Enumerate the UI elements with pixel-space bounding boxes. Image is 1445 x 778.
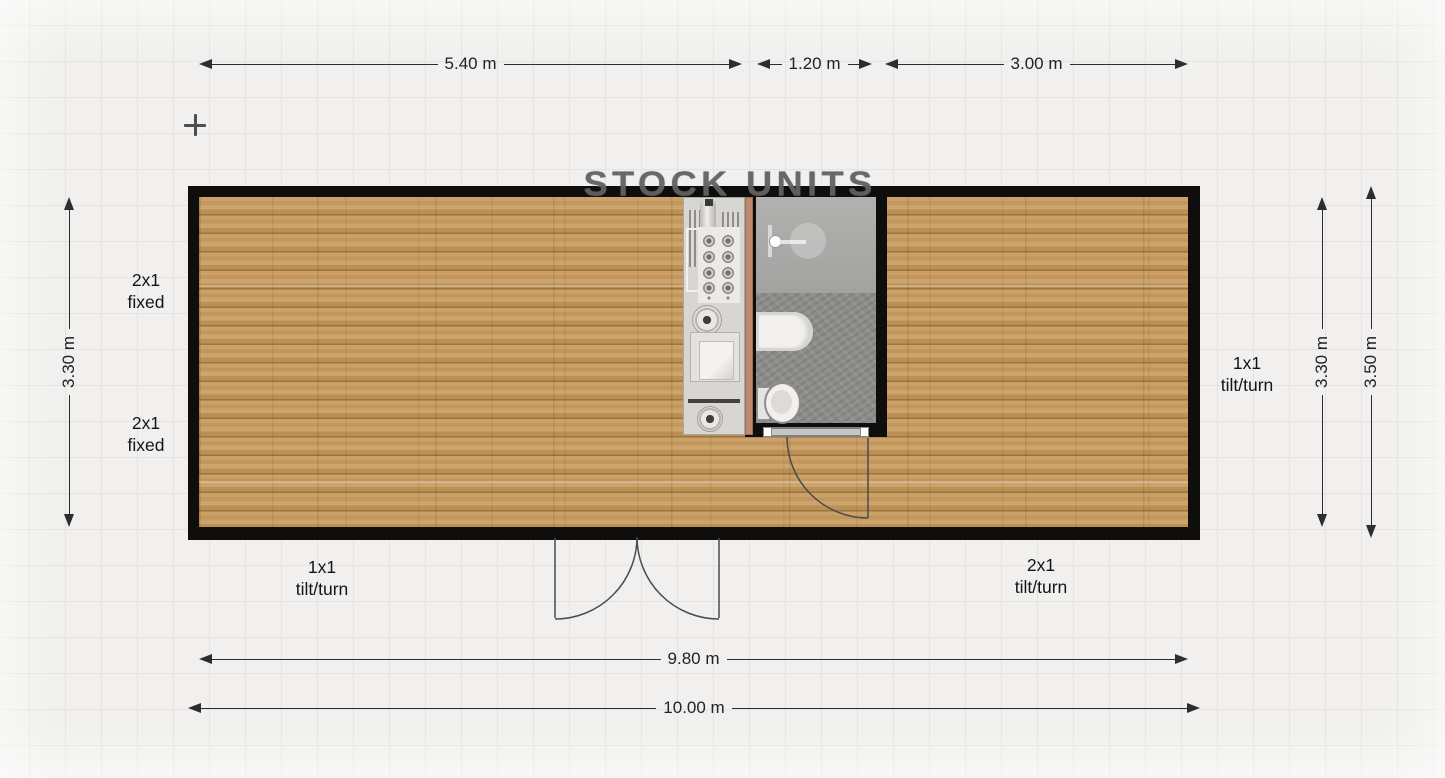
arrowhead-icon xyxy=(1366,186,1376,199)
dimension-value: 5.40 m xyxy=(438,54,504,74)
label-window-right: 1x1 tilt/turn xyxy=(1198,352,1296,396)
dimension-value: 9.80 m xyxy=(661,649,727,669)
dimension-line xyxy=(727,659,1176,660)
crosshair-vertical-bar xyxy=(194,114,197,136)
dimension-line xyxy=(1070,64,1176,65)
arrowhead-icon xyxy=(199,59,212,69)
dimension-value: 3.30 m xyxy=(1312,329,1332,395)
dimension-left-height: 3.30 m xyxy=(59,197,79,527)
dimension-bottom-inner: 9.80 m xyxy=(199,649,1188,669)
watermark: STOCK UNITS xyxy=(527,165,934,204)
counter-divider xyxy=(688,399,740,403)
label-line: tilt/turn xyxy=(1198,374,1296,396)
arrowhead-icon xyxy=(188,703,201,713)
dimension-line xyxy=(69,210,70,329)
label-window-front-right: 2x1 tilt/turn xyxy=(991,554,1091,598)
toilet[interactable] xyxy=(764,382,801,424)
dimension-top-middle: 1.20 m xyxy=(757,54,872,74)
dimension-value: 3.30 m xyxy=(59,329,79,395)
crosshair-cursor xyxy=(184,114,206,136)
arrowhead-icon xyxy=(1317,514,1327,527)
dimension-value: 10.00 m xyxy=(656,698,731,718)
dimension-top-left: 5.40 m xyxy=(199,54,742,74)
arrowhead-icon xyxy=(1175,59,1188,69)
bathroom[interactable] xyxy=(745,186,887,437)
dimension-line xyxy=(1322,210,1323,329)
dimension-line xyxy=(69,395,70,514)
label-line: fixed xyxy=(98,291,194,313)
dimension-line xyxy=(1371,395,1372,525)
shower-area[interactable] xyxy=(756,197,876,293)
door-sill xyxy=(772,427,860,437)
label-line: 2x1 xyxy=(98,412,194,434)
arrowhead-icon xyxy=(1317,197,1327,210)
kitchen-burner[interactable] xyxy=(697,406,723,432)
dimension-top-right: 3.00 m xyxy=(885,54,1188,74)
dimension-line xyxy=(848,64,860,65)
dimension-right-inner-height: 3.30 m xyxy=(1312,197,1332,527)
label-window-left-top: 2x1 fixed xyxy=(98,269,194,313)
floor-plank-highlight xyxy=(199,481,1188,483)
arrowhead-icon xyxy=(859,59,872,69)
dimension-line xyxy=(504,64,730,65)
arrowhead-icon xyxy=(757,59,770,69)
counter-edge xyxy=(745,197,753,435)
label-line: 1x1 xyxy=(272,556,372,578)
arrowhead-icon xyxy=(1175,654,1188,664)
dimension-line xyxy=(898,64,1004,65)
arrowhead-icon xyxy=(1187,703,1200,713)
label-line: fixed xyxy=(98,434,194,456)
arrowhead-icon xyxy=(729,59,742,69)
label-window-front-left: 1x1 tilt/turn xyxy=(272,556,372,600)
arrowhead-icon xyxy=(64,197,74,210)
arrowhead-icon xyxy=(64,514,74,527)
label-line: 1x1 xyxy=(1198,352,1296,374)
arrowhead-icon xyxy=(199,654,212,664)
dimension-value: 3.50 m xyxy=(1361,329,1381,395)
floor-plan-canvas: STOCK UNITS 5.40 m 1.20 m 3.00 m 9.80 m … xyxy=(0,0,1445,778)
label-window-left-bottom: 2x1 fixed xyxy=(98,412,194,456)
shower-spray xyxy=(790,223,826,259)
kitchen-counter[interactable] xyxy=(683,197,753,435)
dimension-line xyxy=(1322,395,1323,514)
cooktop-knobs[interactable] xyxy=(698,227,740,303)
arrowhead-icon xyxy=(1366,525,1376,538)
dimension-line xyxy=(1371,199,1372,329)
arrowhead-icon xyxy=(885,59,898,69)
dimension-value: 1.20 m xyxy=(782,54,848,74)
dimension-line xyxy=(732,708,1187,709)
dimension-right-outer-height: 3.50 m xyxy=(1361,186,1381,538)
kitchen-appliance[interactable] xyxy=(690,332,740,382)
door-jamb xyxy=(860,427,869,437)
label-line: tilt/turn xyxy=(991,576,1091,598)
kitchen-sink[interactable] xyxy=(692,305,722,335)
bathroom-door[interactable] xyxy=(763,427,869,437)
door-jamb xyxy=(763,427,772,437)
dimension-value: 3.00 m xyxy=(1004,54,1070,74)
dimension-line xyxy=(201,708,656,709)
label-line: tilt/turn xyxy=(272,578,372,600)
label-line: 2x1 xyxy=(98,269,194,291)
dimension-line xyxy=(212,64,438,65)
dimension-line xyxy=(770,64,782,65)
bathtub[interactable] xyxy=(756,312,813,351)
label-line: 2x1 xyxy=(991,554,1091,576)
dimension-line xyxy=(212,659,661,660)
dimension-bottom-outer: 10.00 m xyxy=(188,698,1200,718)
